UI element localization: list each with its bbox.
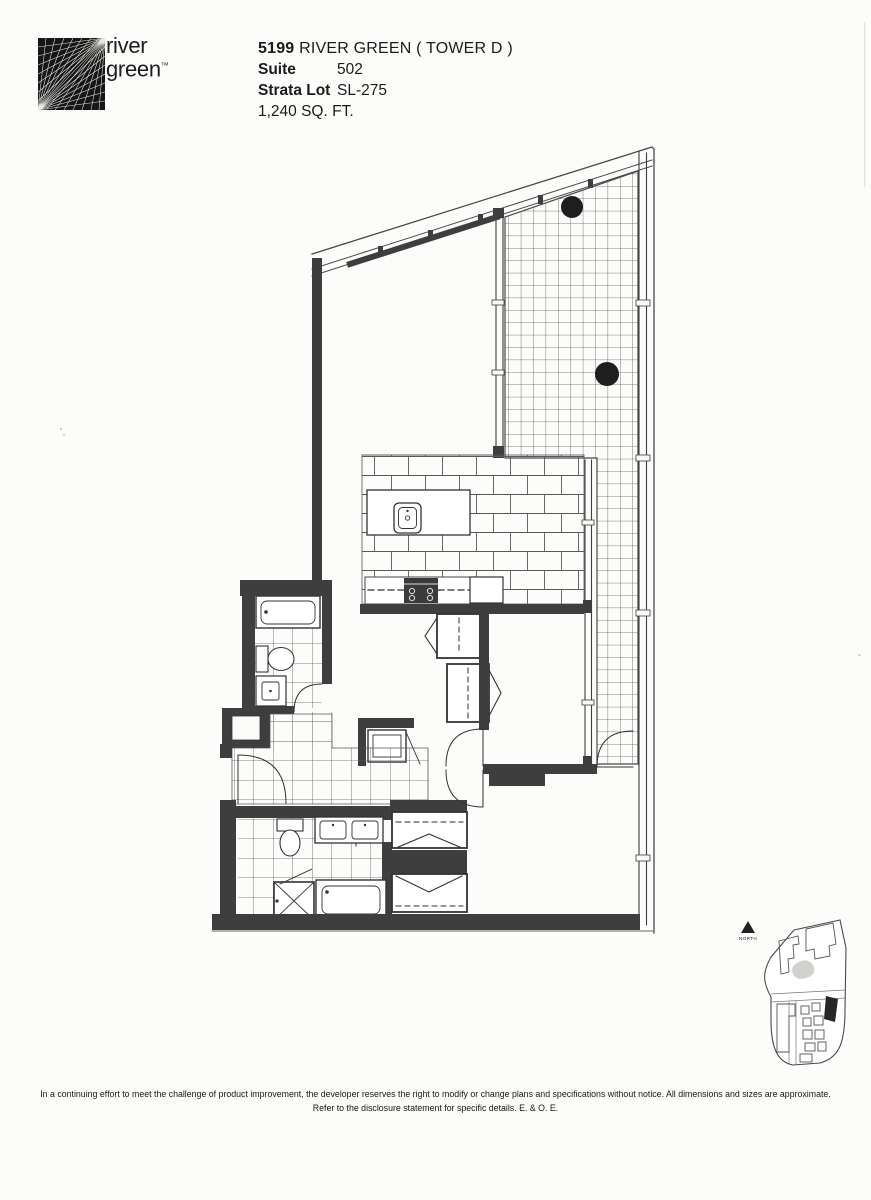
fridge-icon <box>470 577 503 603</box>
wall-bottom <box>212 914 640 930</box>
plan-graphics: NORTH <box>0 0 871 1200</box>
north-label: NORTH <box>739 936 757 941</box>
vanity-sink-icon <box>256 676 286 706</box>
bedroom1-closets <box>390 812 467 912</box>
window-wall-living <box>492 208 504 458</box>
ensuite-bathroom <box>220 806 392 920</box>
main-bathroom <box>240 580 332 714</box>
bedroom-door-arcs <box>446 729 483 807</box>
wall-kitchen-bottom <box>360 604 584 614</box>
north-arrow-icon <box>741 921 755 933</box>
logo-mark <box>38 38 105 110</box>
kitchen-island <box>367 490 470 535</box>
bathtub-icon <box>256 596 320 628</box>
column <box>561 196 583 218</box>
hall-closets <box>425 614 501 722</box>
toilet-icon <box>256 646 294 672</box>
column <box>595 362 619 386</box>
stove-icon <box>404 578 438 603</box>
floorplan-sheet: 5199 RIVER GREEN ( TOWER D ) Suite 502 S… <box>0 0 871 1200</box>
double-vanity-icon <box>315 817 383 843</box>
floor-plan <box>212 147 654 933</box>
sink-icon <box>394 503 421 533</box>
wall-left-living <box>312 258 322 590</box>
key-map: NORTH <box>739 920 846 1065</box>
